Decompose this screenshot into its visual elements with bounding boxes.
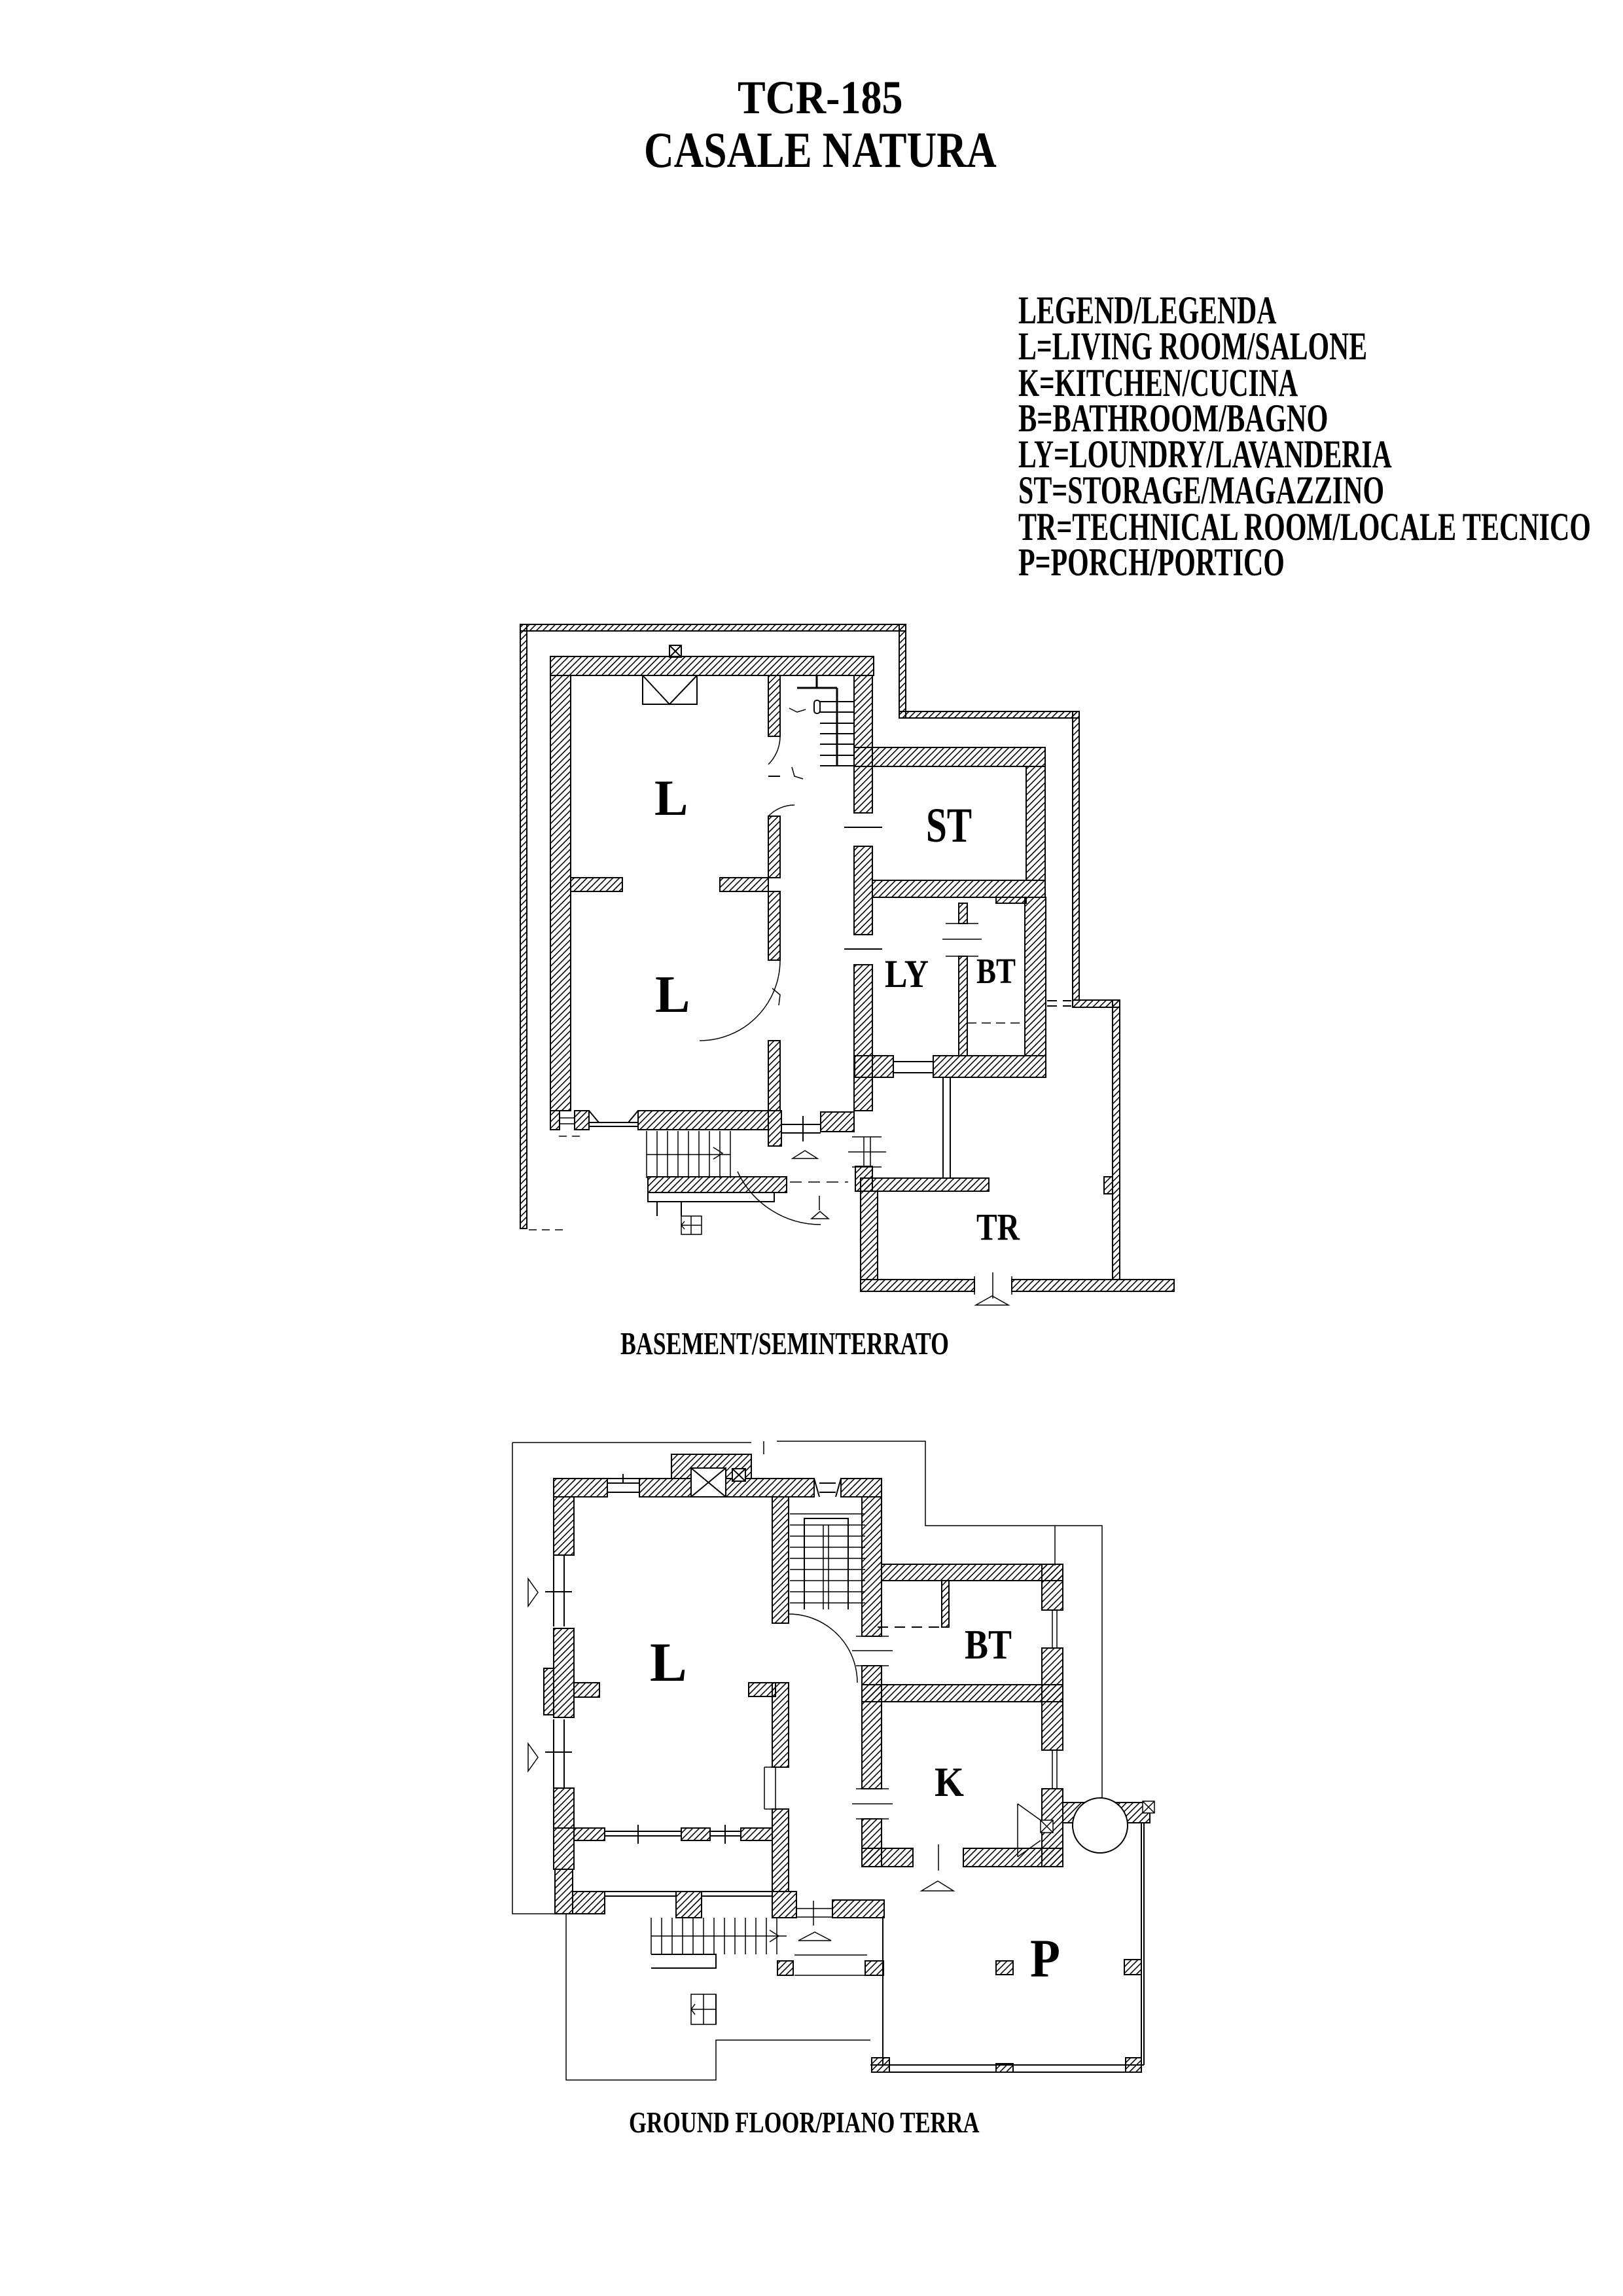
svg-text:L: L xyxy=(654,770,688,826)
svg-text:L: L xyxy=(650,1632,687,1693)
svg-text:BT: BT xyxy=(976,951,1016,991)
svg-text:BT: BT xyxy=(965,1621,1012,1668)
svg-text:LY: LY xyxy=(885,952,929,996)
svg-text:TR: TR xyxy=(976,1206,1020,1248)
svg-text:K: K xyxy=(935,1759,964,1805)
svg-text:ST: ST xyxy=(926,798,972,853)
svg-text:L: L xyxy=(655,966,690,1024)
svg-text:P: P xyxy=(1030,1928,1060,1988)
